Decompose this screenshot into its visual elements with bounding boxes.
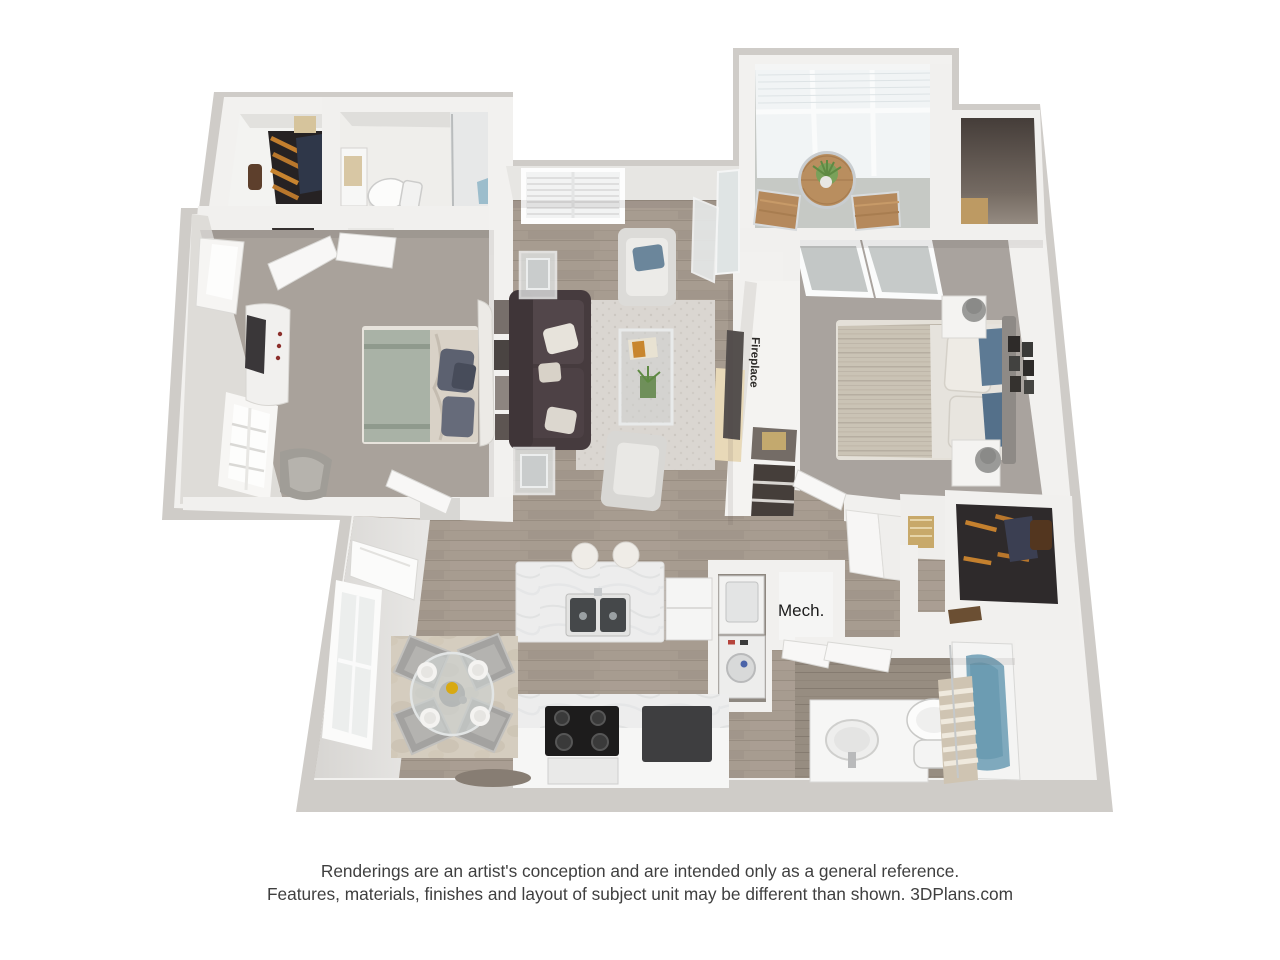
svg-text:Features, materials, finishes: Features, materials, finishes and layout… xyxy=(267,884,1013,904)
svg-text:Fireplace: Fireplace xyxy=(747,337,761,388)
svg-text:Mech.: Mech. xyxy=(778,601,824,620)
svg-text:Renderings are an artist's con: Renderings are an artist's conception an… xyxy=(321,861,959,881)
